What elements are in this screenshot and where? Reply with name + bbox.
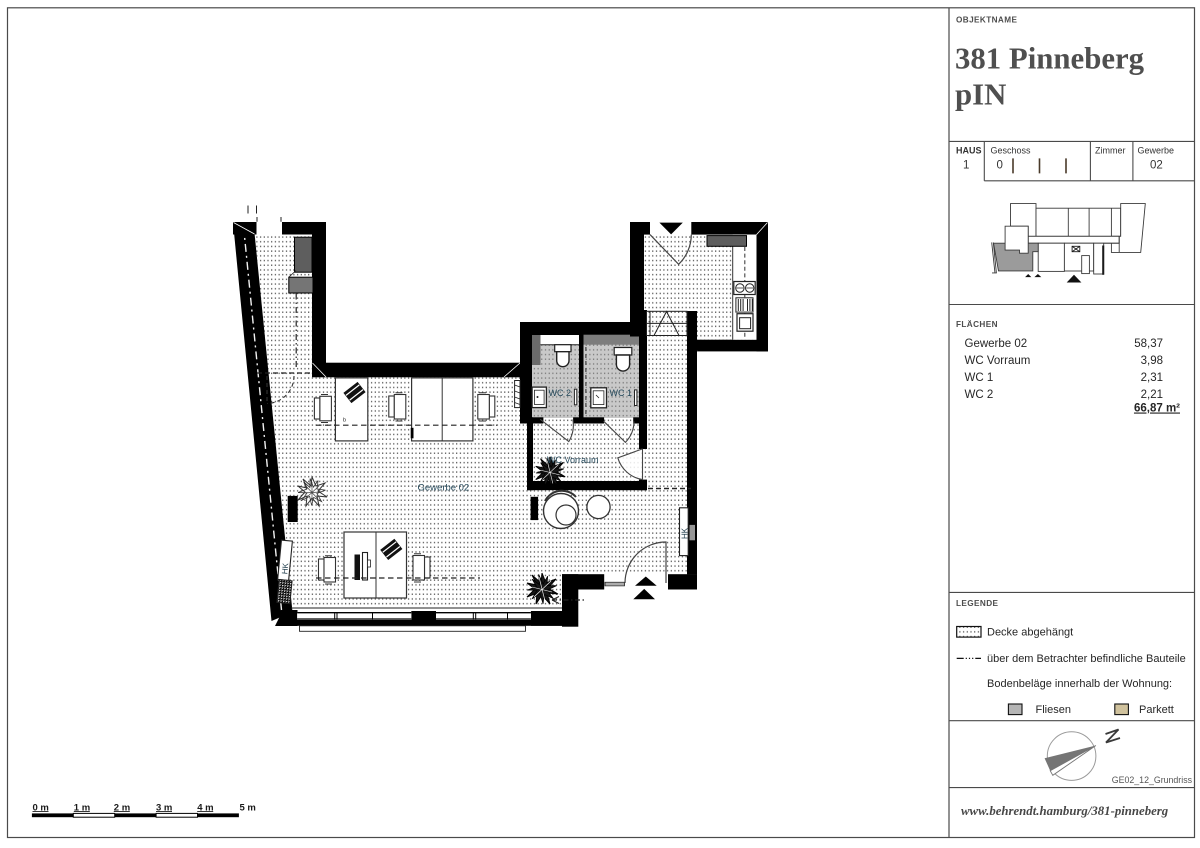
svg-text:HK: HK: [280, 562, 290, 575]
svg-text:Fliesen: Fliesen: [1036, 704, 1071, 716]
svg-text:WC Vorraum: WC Vorraum: [965, 355, 1031, 367]
svg-text:Parkett: Parkett: [1139, 704, 1174, 716]
svg-text:3,98: 3,98: [1141, 355, 1163, 367]
svg-text:381 Pinneberg: 381 Pinneberg: [955, 41, 1145, 75]
svg-text:WC Vorraum: WC Vorraum: [547, 455, 599, 465]
svg-text:Gewerbe 02: Gewerbe 02: [418, 483, 470, 494]
svg-text:02: 02: [1150, 160, 1163, 172]
svg-text:Zimmer: Zimmer: [1095, 146, 1126, 156]
svg-text:2,21: 2,21: [1141, 389, 1163, 401]
svg-text:Gewerbe 02: Gewerbe 02: [965, 338, 1028, 350]
svg-text:WC 2: WC 2: [965, 389, 994, 401]
svg-text:Decke abgehängt: Decke abgehängt: [987, 627, 1073, 639]
svg-text:0: 0: [997, 160, 1003, 172]
svg-text:5 m: 5 m: [240, 802, 256, 813]
svg-text:www.behrendt.hamburg/381-pinne: www.behrendt.hamburg/381-pinneberg: [961, 804, 1169, 818]
svg-text:HAUS: HAUS: [956, 146, 982, 156]
svg-text:HK: HK: [681, 527, 690, 539]
svg-text:LEGENDE: LEGENDE: [956, 599, 999, 608]
svg-text:pIN: pIN: [955, 78, 1006, 112]
svg-text:58,37: 58,37: [1134, 338, 1163, 350]
svg-text:1: 1: [963, 160, 969, 172]
svg-text:Geschoss: Geschoss: [991, 146, 1032, 156]
svg-text:WC 1: WC 1: [965, 372, 994, 384]
svg-text:Gewerbe: Gewerbe: [1138, 146, 1175, 156]
svg-text:FLÄCHEN: FLÄCHEN: [956, 319, 998, 329]
svg-text:WC 1: WC 1: [610, 388, 633, 398]
svg-text:Bodenbeläge innerhalb der Wohn: Bodenbeläge innerhalb der Wohnung:: [987, 678, 1172, 690]
svg-text:OBJEKTNAME: OBJEKTNAME: [956, 16, 1017, 25]
svg-text:b: b: [343, 418, 346, 424]
svg-text:GE02_12_Grundriss: GE02_12_Grundriss: [1112, 775, 1193, 785]
svg-text:2,31: 2,31: [1141, 372, 1163, 384]
svg-text:über dem Betrachter befindlich: über dem Betrachter befindliche Bauteile: [987, 653, 1186, 665]
svg-text:66,87 m²: 66,87 m²: [1134, 403, 1180, 415]
svg-text:WC 2: WC 2: [549, 388, 572, 398]
